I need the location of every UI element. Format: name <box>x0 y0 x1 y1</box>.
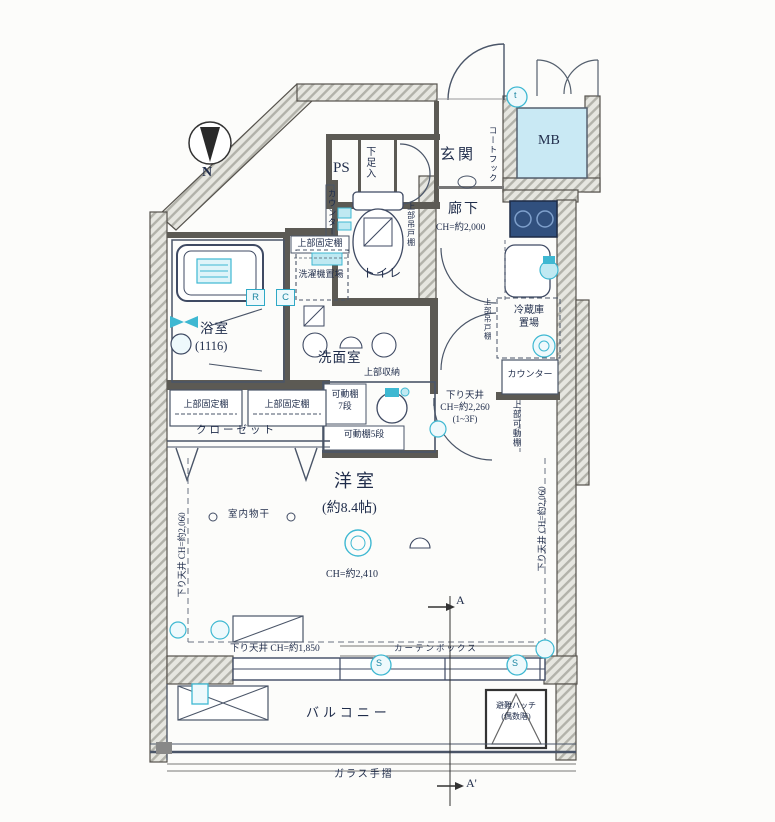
water-heater-letter: t <box>514 91 517 101</box>
shoe-box-door-top <box>400 144 430 174</box>
closet-shelf-left-label: 上部固定棚 <box>171 400 241 410</box>
ceiling-light-icon <box>345 530 371 556</box>
mb-door-right <box>564 60 598 94</box>
wall-balcony-right <box>556 684 576 760</box>
escape-hatch-label-1: 避難ハッチ <box>492 702 540 711</box>
toilet-tank <box>353 192 403 210</box>
washer-label: 洗濯機置場 <box>293 270 349 280</box>
drop-left-label: 下り天井 CH=約2,060 <box>178 490 188 620</box>
wall-top <box>297 84 437 101</box>
washer-faucet-icon <box>312 253 342 265</box>
balcony-label: バルコニー <box>306 706 391 720</box>
wall-genkan-left <box>434 101 439 209</box>
toilet-shelf-label: 上部吊戸棚 <box>406 202 415 247</box>
escape-hatch-label-2: (偶数階) <box>492 713 540 722</box>
vanity-basin <box>377 393 407 423</box>
washer-shelf-label: 上部固定棚 <box>293 239 347 249</box>
bath-door-line <box>209 364 262 371</box>
paper-holder-icon <box>338 208 351 218</box>
wall-right <box>557 200 576 685</box>
closet-label: クローゼット <box>196 425 277 436</box>
shelf7-label-1: 可動棚 <box>326 390 364 400</box>
upper-storage-label: 上部収納 <box>364 368 400 378</box>
section-arrowhead <box>455 782 464 790</box>
wall-ps-top <box>326 134 440 140</box>
compass-north-label: N <box>202 165 212 180</box>
bath-label: 浴室 <box>200 322 229 337</box>
glass-rail-label: ガラス手摺 <box>334 770 394 781</box>
washroom-fixture <box>372 333 396 357</box>
curtain-box-label: カーテンボックス <box>394 644 478 653</box>
closet-shelf-right-label: 上部固定棚 <box>249 400 325 410</box>
main-room-label: 洋室 <box>334 472 378 491</box>
water-heater-symbol <box>507 87 527 107</box>
toilet-counter-label: カウンター <box>327 189 336 237</box>
drop-right-label: 下り天井 CH=約2,060 <box>538 464 548 594</box>
controller-symbol: C <box>276 289 295 306</box>
drying-label: 室内物干 <box>228 510 270 520</box>
shower-valve-icon <box>170 316 184 328</box>
shower-valve-icon <box>184 316 198 328</box>
washroom-label: 洗面室 <box>318 351 362 366</box>
corridor-ch-label: CH=約2,000 <box>436 223 485 233</box>
washroom-door-arc <box>441 248 496 303</box>
shoe-box-label: 下足入 <box>363 146 374 179</box>
shelf7-label-2: 7段 <box>326 402 364 412</box>
remote-symbol: R <box>246 289 265 306</box>
sash-letter: S <box>376 659 382 669</box>
fridge-outlet-icon <box>533 335 555 357</box>
wall-diagonal <box>159 84 314 230</box>
floor-plan: N PS 下足入 玄関 MB コートフック t 廊下 CH=約2,000 トイレ… <box>0 0 775 822</box>
drop-ceiling-label-3: (1~3F) <box>440 415 490 425</box>
drain-symbol <box>192 684 208 704</box>
wall-right-outer <box>576 300 589 485</box>
wall-bath-top <box>167 232 287 238</box>
wall-south-left <box>167 656 233 684</box>
entrance-door-arc <box>448 44 504 100</box>
wall-south-right <box>544 656 577 684</box>
corridor-label: 廊下 <box>448 202 480 217</box>
drop-ceiling-label-1: 下り天井 <box>434 391 496 401</box>
vanity-faucet-icon <box>385 388 399 397</box>
entrance-label: 玄関 <box>440 147 476 163</box>
stove <box>510 201 557 237</box>
vanity-handle-icon <box>401 388 409 396</box>
bath-drain-icon <box>171 334 191 354</box>
sink-faucet-icon <box>543 256 555 264</box>
utility-symbol <box>170 622 186 638</box>
plan-drawing <box>0 0 775 822</box>
utility-symbol <box>536 640 554 658</box>
toilet-label: トイレ <box>363 267 402 280</box>
counter-shelf-label: 上部可動棚 <box>512 400 521 448</box>
fridge-label-2: 置場 <box>505 319 553 330</box>
fridge-shelf-label: 上部吊戸棚 <box>483 298 491 341</box>
mb-label: MB <box>538 133 560 148</box>
washroom-fixture <box>340 337 362 348</box>
ceiling-light-icon <box>351 536 365 550</box>
mb-door-left <box>537 60 571 94</box>
bath-size-label: (1116) <box>195 340 227 354</box>
drop-ceiling-label-2: CH=約2,260 <box>428 403 502 413</box>
sash-letter: S <box>512 659 518 669</box>
coat-hook-label: コートフック <box>488 126 497 183</box>
kitchen-counter-label: カウンター <box>506 370 554 380</box>
drying-hook-icon <box>209 513 217 521</box>
drop-window-label: 下り天井 CH=約1,850 <box>230 644 320 654</box>
drying-hook-icon <box>287 513 295 521</box>
paper-holder-icon <box>338 222 351 230</box>
wall-left <box>150 212 167 762</box>
section-a-prime-label: A' <box>466 777 477 790</box>
ps-label: PS <box>333 160 350 176</box>
hanger-pipe-icon <box>295 448 317 480</box>
wall-corridor-east <box>430 304 438 394</box>
main-room-size-label: (約8.4帖) <box>322 501 377 516</box>
main-room-ch-label: CH=約2,410 <box>326 570 378 581</box>
section-a-label: A <box>456 594 465 607</box>
hanger-pipe-icon <box>176 448 198 480</box>
rail-post <box>156 742 172 754</box>
fridge-label-1: 冷蔵庫 <box>505 306 553 317</box>
shelf5-label: 可動棚5段 <box>326 430 402 440</box>
utility-symbol <box>211 621 229 639</box>
wall-light-icon <box>410 538 430 548</box>
